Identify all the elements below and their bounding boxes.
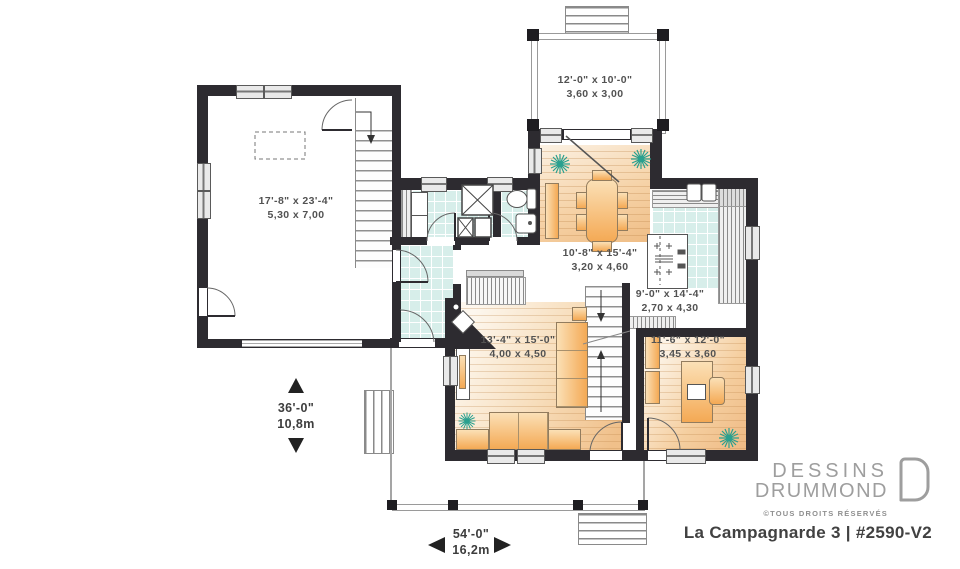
depth-dimension: 36'-0" 10,8m: [258, 401, 334, 432]
door-opening: [427, 237, 455, 245]
deck-post: [527, 119, 539, 131]
dimension-arrow-down-icon: [288, 438, 304, 453]
depth-imperial: 36'-0": [258, 401, 334, 417]
wall: [493, 190, 501, 237]
deck-steps: [565, 6, 629, 35]
wall: [528, 129, 540, 245]
wall: [650, 178, 758, 189]
window: [631, 128, 653, 143]
dryer: [411, 215, 428, 239]
width-metric: 16,2m: [449, 543, 493, 559]
garage-dim-imperial: 17'-8" x 23'-4": [242, 195, 350, 209]
wall: [392, 85, 401, 348]
porch-post: [573, 500, 583, 510]
window: [197, 191, 211, 219]
dining-dim-metric: 3,20 x 4,60: [546, 261, 654, 275]
bath-floor: [501, 190, 528, 237]
side-table: [572, 307, 587, 321]
dining-chair: [617, 214, 628, 231]
dimension-arrow-right-icon: [494, 537, 511, 553]
garage-door-opening: [242, 340, 362, 347]
window: [517, 449, 545, 464]
kitchen-dim-imperial: 9'-0" x 14'-4": [616, 288, 724, 302]
wall: [205, 85, 401, 96]
bookshelf: [645, 371, 660, 404]
dimension-arrow-up-icon: [288, 378, 304, 393]
kitchen-dim-metric: 2,70 x 4,30: [616, 302, 724, 316]
plan-title: La Campagnarde 3 | #2590-V2: [684, 523, 932, 543]
floor-plan: 12'-0" x 10'-0" 3,60 x 3,00 17'-8" x 23'…: [0, 0, 960, 569]
deck-post: [657, 119, 669, 131]
living-dim-metric: 4,00 x 4,50: [464, 348, 572, 362]
deck-post: [657, 29, 669, 41]
window: [236, 85, 264, 99]
deck-post: [527, 29, 539, 41]
dining-chair: [592, 170, 612, 181]
brand-name: DESSINS DRUMMOND: [755, 461, 888, 502]
desk-monitor: [687, 384, 706, 400]
door-opening: [489, 237, 517, 245]
front-porch-rail: [392, 504, 645, 511]
side-porch-edge: [390, 346, 392, 506]
window: [745, 366, 760, 394]
window: [264, 85, 292, 99]
door-opening: [199, 288, 207, 316]
office-dim-metric: 3,45 x 3,60: [634, 348, 742, 362]
deck-dim-imperial: 12'-0" x 10'-0": [541, 74, 649, 88]
porch-post: [448, 500, 458, 510]
dining-table: [586, 179, 618, 243]
dining-label: 10'-8" x 15'-4" 3,20 x 4,60: [546, 247, 654, 274]
patio-door-opening: [564, 130, 630, 139]
window: [528, 148, 542, 174]
brand-line2: DRUMMOND: [755, 481, 888, 502]
dining-chair: [576, 192, 587, 209]
branding-block: DESSINS DRUMMOND ©TOUS DROITS RÉSERVÉS L…: [684, 456, 932, 543]
depth-metric: 10,8m: [258, 417, 334, 433]
passage-opening: [453, 250, 461, 284]
buffet: [545, 183, 559, 239]
porch-post: [387, 500, 397, 510]
brand-rights: ©TOUS DROITS RÉSERVÉS: [684, 509, 888, 518]
living-label: 13'-4" x 15'-0" 4,00 x 4,50: [464, 334, 572, 361]
front-porch-steps: [578, 513, 647, 545]
kitchen-label: 9'-0" x 14'-4" 2,70 x 4,30: [616, 288, 724, 315]
window: [197, 163, 211, 191]
porch-post: [638, 500, 648, 510]
garage-stairs-landing: [355, 98, 392, 130]
window: [421, 177, 447, 192]
brand-line1: DESSINS: [755, 461, 888, 481]
closet-rod: [466, 277, 526, 305]
loveseat: [489, 412, 549, 450]
dining-chair: [576, 214, 587, 231]
width-imperial: 54'-0": [449, 527, 493, 543]
living-dim-imperial: 13'-4" x 15'-0": [464, 334, 572, 348]
dimension-arrow-left-icon: [428, 537, 445, 553]
closet-shelf: [466, 270, 524, 277]
end-table: [548, 429, 581, 450]
door-opening: [590, 451, 622, 460]
office-label: 11'-6" x 12'-0" 3,45 x 3,60: [634, 334, 742, 361]
width-dimension: 54'-0" 16,2m: [449, 527, 493, 558]
dining-dim-imperial: 10'-8" x 15'-4": [546, 247, 654, 261]
end-table: [456, 429, 489, 450]
office-dim-imperial: 11'-6" x 12'-0": [634, 334, 742, 348]
window: [487, 177, 513, 192]
garage-stairs: [355, 130, 393, 268]
garage-label: 17'-8" x 23'-4" 5,30 x 7,00: [242, 195, 350, 222]
deck-rail-top: [531, 33, 666, 40]
deck-dim-metric: 3,60 x 3,00: [541, 88, 649, 102]
window: [487, 449, 515, 464]
door-opening: [399, 339, 435, 347]
attic-access: [255, 132, 305, 159]
window: [540, 128, 562, 143]
wall: [746, 178, 758, 461]
door-opening: [393, 250, 400, 282]
window: [443, 356, 458, 386]
drummond-door-icon: [894, 456, 932, 507]
washer: [411, 192, 428, 216]
desk-chair: [709, 377, 725, 405]
deck-label: 12'-0" x 10'-0" 3,60 x 3,00: [541, 74, 649, 101]
garage-dim-metric: 5,30 x 7,00: [242, 209, 350, 223]
dining-chair: [617, 192, 628, 209]
window: [745, 226, 760, 260]
